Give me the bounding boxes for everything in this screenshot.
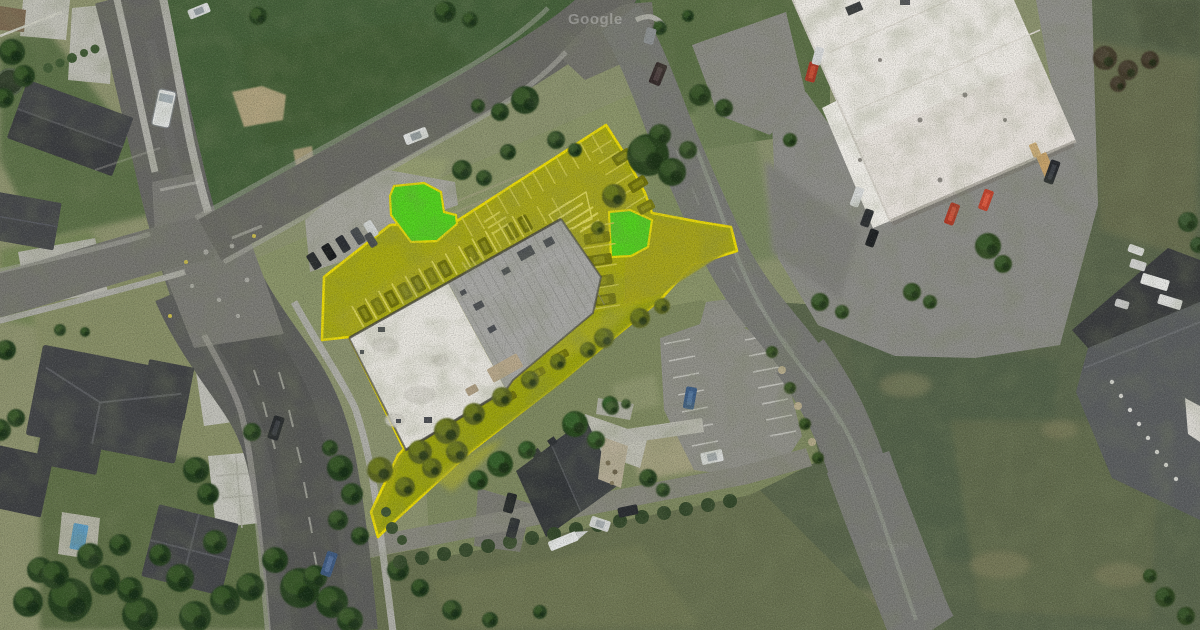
svg-text:Google: Google — [568, 11, 623, 28]
svg-text:Google: Google — [870, 539, 909, 553]
